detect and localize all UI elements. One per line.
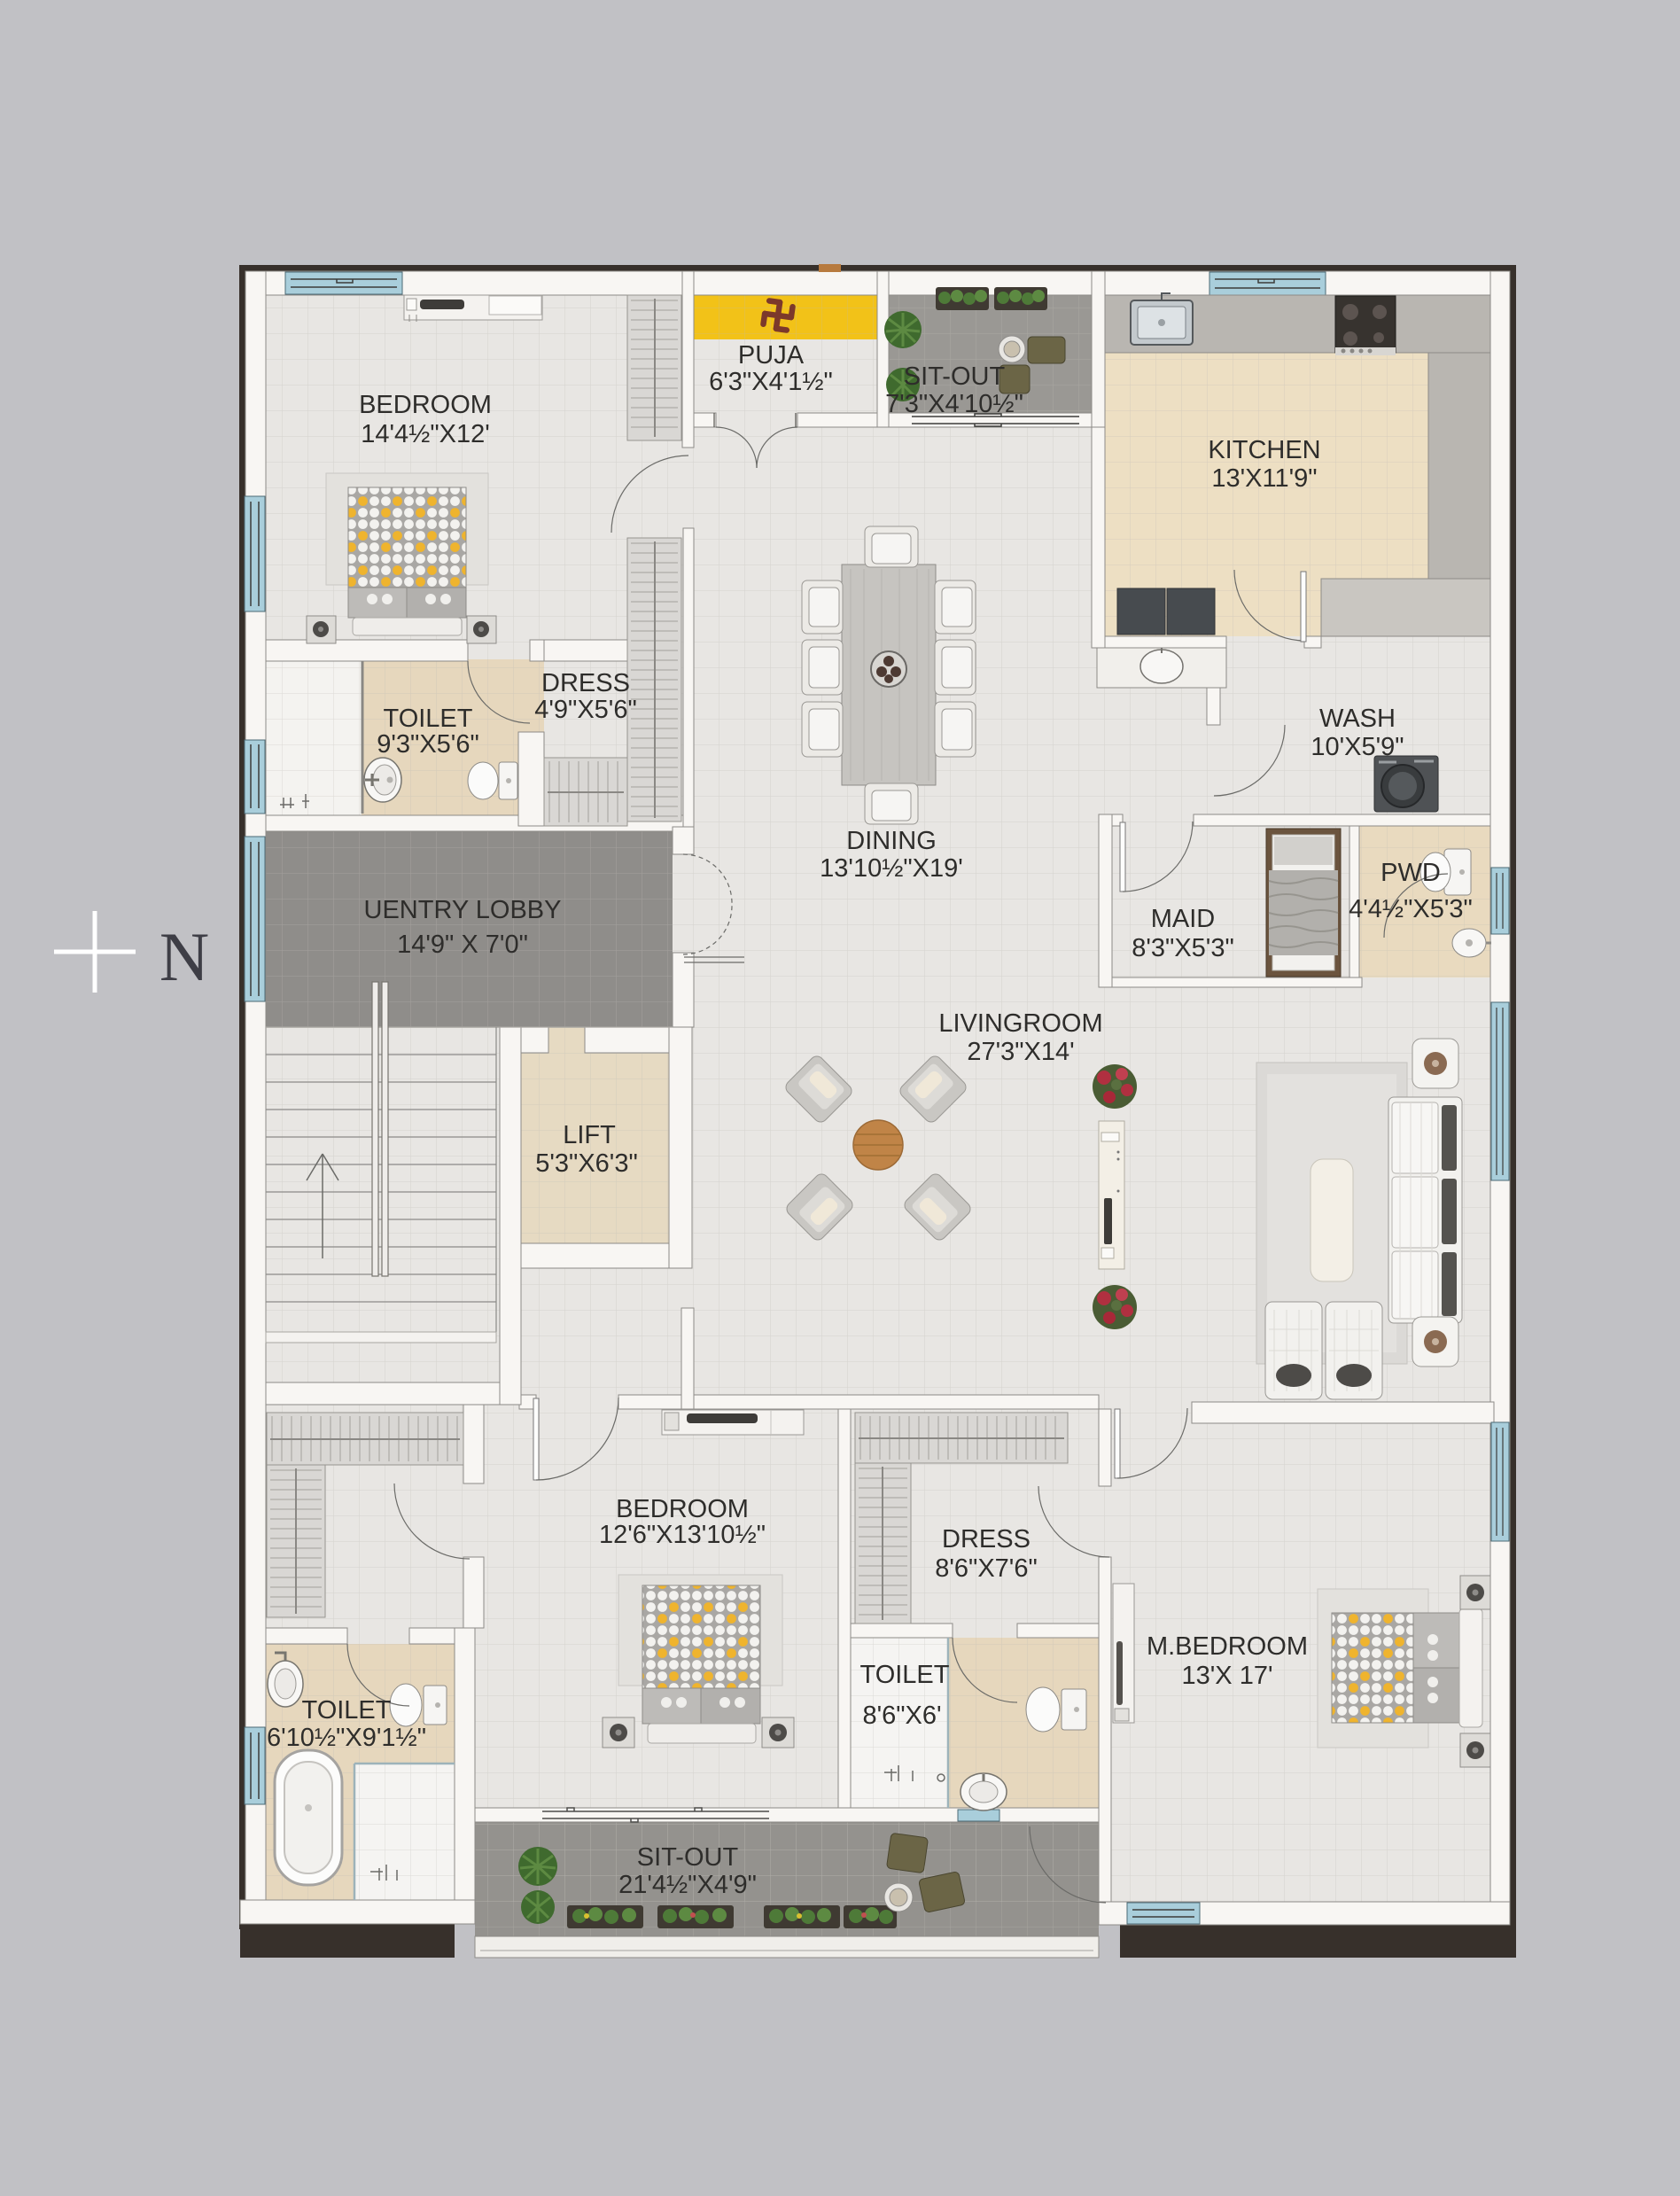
svg-text:12'6"X13'10½": 12'6"X13'10½" — [599, 1521, 766, 1549]
svg-text:13'X11'9": 13'X11'9" — [1211, 464, 1317, 493]
svg-text:MAID: MAID — [1151, 905, 1216, 933]
svg-text:WASH: WASH — [1319, 705, 1396, 733]
svg-text:21'4½"X4'9": 21'4½"X4'9" — [618, 1871, 757, 1899]
svg-text:4'9"X5'6": 4'9"X5'6" — [534, 696, 637, 724]
svg-text:6'3"X4'1½": 6'3"X4'1½" — [709, 368, 833, 396]
svg-text:PUJA: PUJA — [738, 341, 805, 370]
svg-text:SIT-OUT: SIT-OUT — [904, 362, 1006, 391]
svg-text:N: N — [159, 918, 209, 995]
svg-text:TOILET: TOILET — [384, 705, 473, 733]
svg-text:DRESS: DRESS — [942, 1525, 1031, 1554]
svg-text:LIVINGROOM: LIVINGROOM — [938, 1009, 1102, 1038]
svg-text:8'3"X5'3": 8'3"X5'3" — [1132, 934, 1234, 962]
svg-text:TOILET: TOILET — [302, 1696, 392, 1725]
svg-text:7'3"X4'10½": 7'3"X4'10½" — [885, 390, 1023, 418]
svg-text:LIFT: LIFT — [563, 1121, 616, 1149]
svg-text:UENTRY LOBBY: UENTRY LOBBY — [364, 896, 562, 924]
svg-text:27'3"X14': 27'3"X14' — [967, 1038, 1074, 1066]
svg-text:PWD: PWD — [1381, 859, 1441, 887]
svg-text:13'X 17': 13'X 17' — [1182, 1662, 1273, 1690]
svg-text:8'6"X7'6": 8'6"X7'6" — [935, 1554, 1038, 1583]
svg-text:6'10½"X9'1½": 6'10½"X9'1½" — [267, 1724, 426, 1752]
svg-text:8'6"X6': 8'6"X6' — [862, 1702, 941, 1730]
svg-text:5'3"X6'3": 5'3"X6'3" — [535, 1149, 638, 1178]
svg-text:KITCHEN: KITCHEN — [1208, 436, 1320, 464]
svg-text:10'X5'9": 10'X5'9" — [1311, 733, 1404, 761]
svg-text:13'10½"X19': 13'10½"X19' — [820, 854, 963, 883]
svg-text:14'4½"X12': 14'4½"X12' — [361, 420, 490, 448]
svg-text:14'9" X 7'0": 14'9" X 7'0" — [397, 931, 528, 959]
svg-text:M.BEDROOM: M.BEDROOM — [1147, 1632, 1308, 1661]
svg-text:9'3"X5'6": 9'3"X5'6" — [377, 730, 479, 759]
svg-text:DRESS: DRESS — [541, 669, 630, 697]
svg-text:SIT-OUT: SIT-OUT — [637, 1843, 739, 1872]
svg-text:DINING: DINING — [846, 827, 937, 855]
svg-text:BEDROOM: BEDROOM — [616, 1495, 749, 1523]
svg-text:4'4½"X5'3": 4'4½"X5'3" — [1349, 895, 1473, 923]
svg-text:TOILET: TOILET — [860, 1661, 950, 1689]
svg-text:BEDROOM: BEDROOM — [359, 391, 492, 419]
